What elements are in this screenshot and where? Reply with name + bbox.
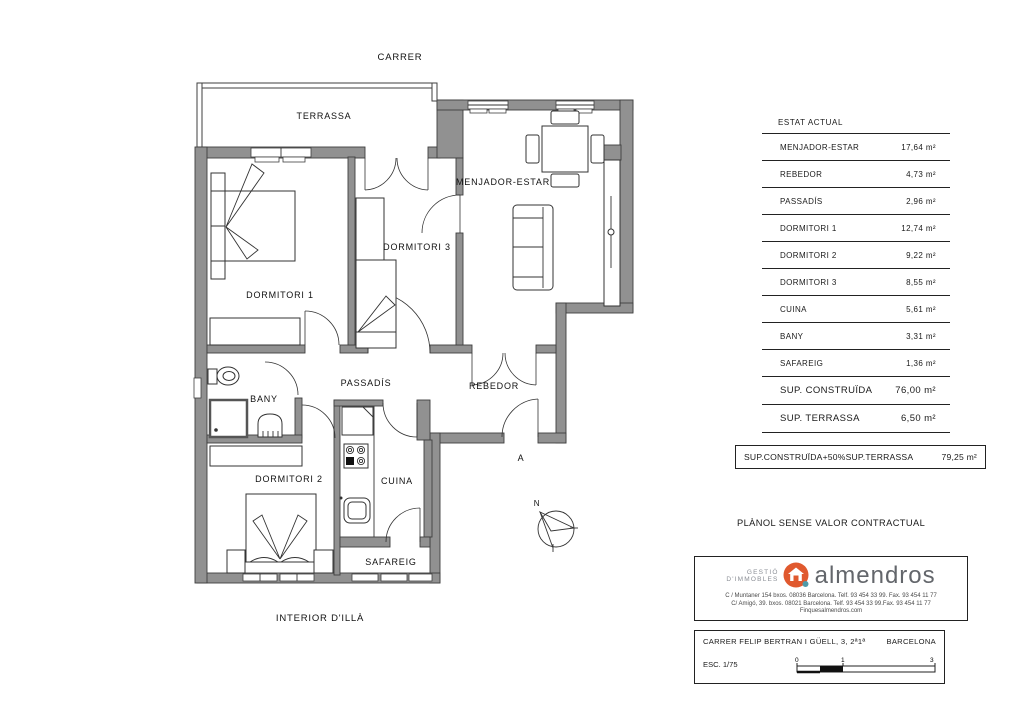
- room-label-rebedor: REBEDOR: [469, 381, 519, 391]
- sink: [340, 497, 371, 524]
- compass-north-label: N: [534, 499, 541, 508]
- kitchen-fixtures: [340, 406, 375, 537]
- total-surface-value: 79,25 m²: [941, 452, 977, 462]
- svg-text:3: 3: [930, 657, 934, 664]
- table-row: MENJADOR-ESTAR17,64 m²: [762, 134, 950, 161]
- fridge: [342, 407, 373, 435]
- floorplan-sheet: { "plan": { "street_label": "CARRER", "b…: [0, 0, 1024, 723]
- room-label-menjador: MENJADOR-ESTAR: [456, 177, 550, 187]
- dining-table: [526, 111, 604, 187]
- stove: [344, 444, 368, 468]
- agency-tagline: GESTIÓ D'IMMOBLES: [726, 569, 778, 583]
- room-label-dormitori1: DORMITORI 1: [246, 290, 314, 300]
- agency-address: C / Muntaner 154 bxos. 08036 Barcelona. …: [695, 593, 967, 616]
- project-city: BARCELONA: [886, 637, 936, 646]
- svg-text:1: 1: [841, 657, 845, 664]
- total-surface-label: SUP.CONSTRUÏDA+50%SUP.TERRASSA: [744, 452, 913, 462]
- svg-text:0: 0: [795, 657, 799, 664]
- bed-dormitori1: [211, 164, 295, 279]
- wardrobe-dormitori2: [210, 446, 302, 466]
- table-row-summary: SUP. CONSTRUÏDA76,00 m²: [762, 377, 950, 405]
- project-address: CARRER FELIP BERTRAN I GÜELL, 3, 2ª1ª: [703, 637, 865, 646]
- table-row: DORMITORI 112,74 m²: [762, 215, 950, 242]
- agency-website: Finquesalmendros.com: [695, 608, 967, 616]
- floorplan-drawing: CARRER TERRASSA MENJADOR-ESTAR DORMITORI…: [0, 0, 700, 723]
- sofa: [513, 205, 553, 290]
- house-icon: [783, 562, 811, 590]
- surface-table-title: ESTAT ACTUAL: [762, 114, 950, 134]
- room-label-dormitori3: DORMITORI 3: [383, 242, 451, 252]
- table-row: CUINA5,61 m²: [762, 296, 950, 323]
- room-label-dormitori2: DORMITORI 2: [255, 474, 323, 484]
- sideboard: [604, 160, 620, 306]
- table-row: PASSADÍS2,96 m²: [762, 188, 950, 215]
- block-interior-label: INTERIOR D'ILLÀ: [276, 613, 364, 624]
- scale-bar: 0 1 3: [794, 652, 944, 678]
- room-label-bany: BANY: [250, 394, 278, 404]
- agency-name: almendros: [815, 564, 936, 588]
- table-row: BANY3,31 m²: [762, 323, 950, 350]
- table-row: DORMITORI 38,55 m²: [762, 269, 950, 296]
- disclaimer-text: PLÀNOL SENSE VALOR CONTRACTUAL: [737, 518, 969, 528]
- shower: [210, 400, 247, 437]
- bed-dormitori2: [227, 494, 333, 573]
- entrance-marker: A: [518, 453, 525, 463]
- table-row: SAFAREIG1,36 m²: [762, 350, 950, 377]
- table-row: REBEDOR4,73 m²: [762, 161, 950, 188]
- table-row: DORMITORI 29,22 m²: [762, 242, 950, 269]
- bidet: [258, 414, 282, 437]
- wardrobe-bed-dormitori3: [356, 198, 396, 348]
- agency-logo-box: GESTIÓ D'IMMOBLES almendros C / Muntaner…: [694, 556, 968, 621]
- street-label: CARRER: [378, 52, 423, 63]
- toilet: [208, 367, 239, 385]
- surface-table: ESTAT ACTUAL MENJADOR-ESTAR17,64 m² REBE…: [762, 114, 950, 433]
- compass: [538, 511, 578, 552]
- room-label-terrassa: TERRASSA: [297, 111, 352, 121]
- room-label-cuina: CUINA: [381, 476, 413, 486]
- total-surface-box: SUP.CONSTRUÏDA+50%SUP.TERRASSA 79,25 m²: [735, 445, 986, 469]
- scale-label: ESC. 1/75: [703, 660, 738, 669]
- room-label-safareig: SAFAREIG: [365, 557, 416, 567]
- table-row-summary: SUP. TERRASSA6,50 m²: [762, 405, 950, 433]
- dresser-dormitori1: [210, 318, 300, 345]
- room-label-passadis: PASSADÍS: [341, 378, 392, 388]
